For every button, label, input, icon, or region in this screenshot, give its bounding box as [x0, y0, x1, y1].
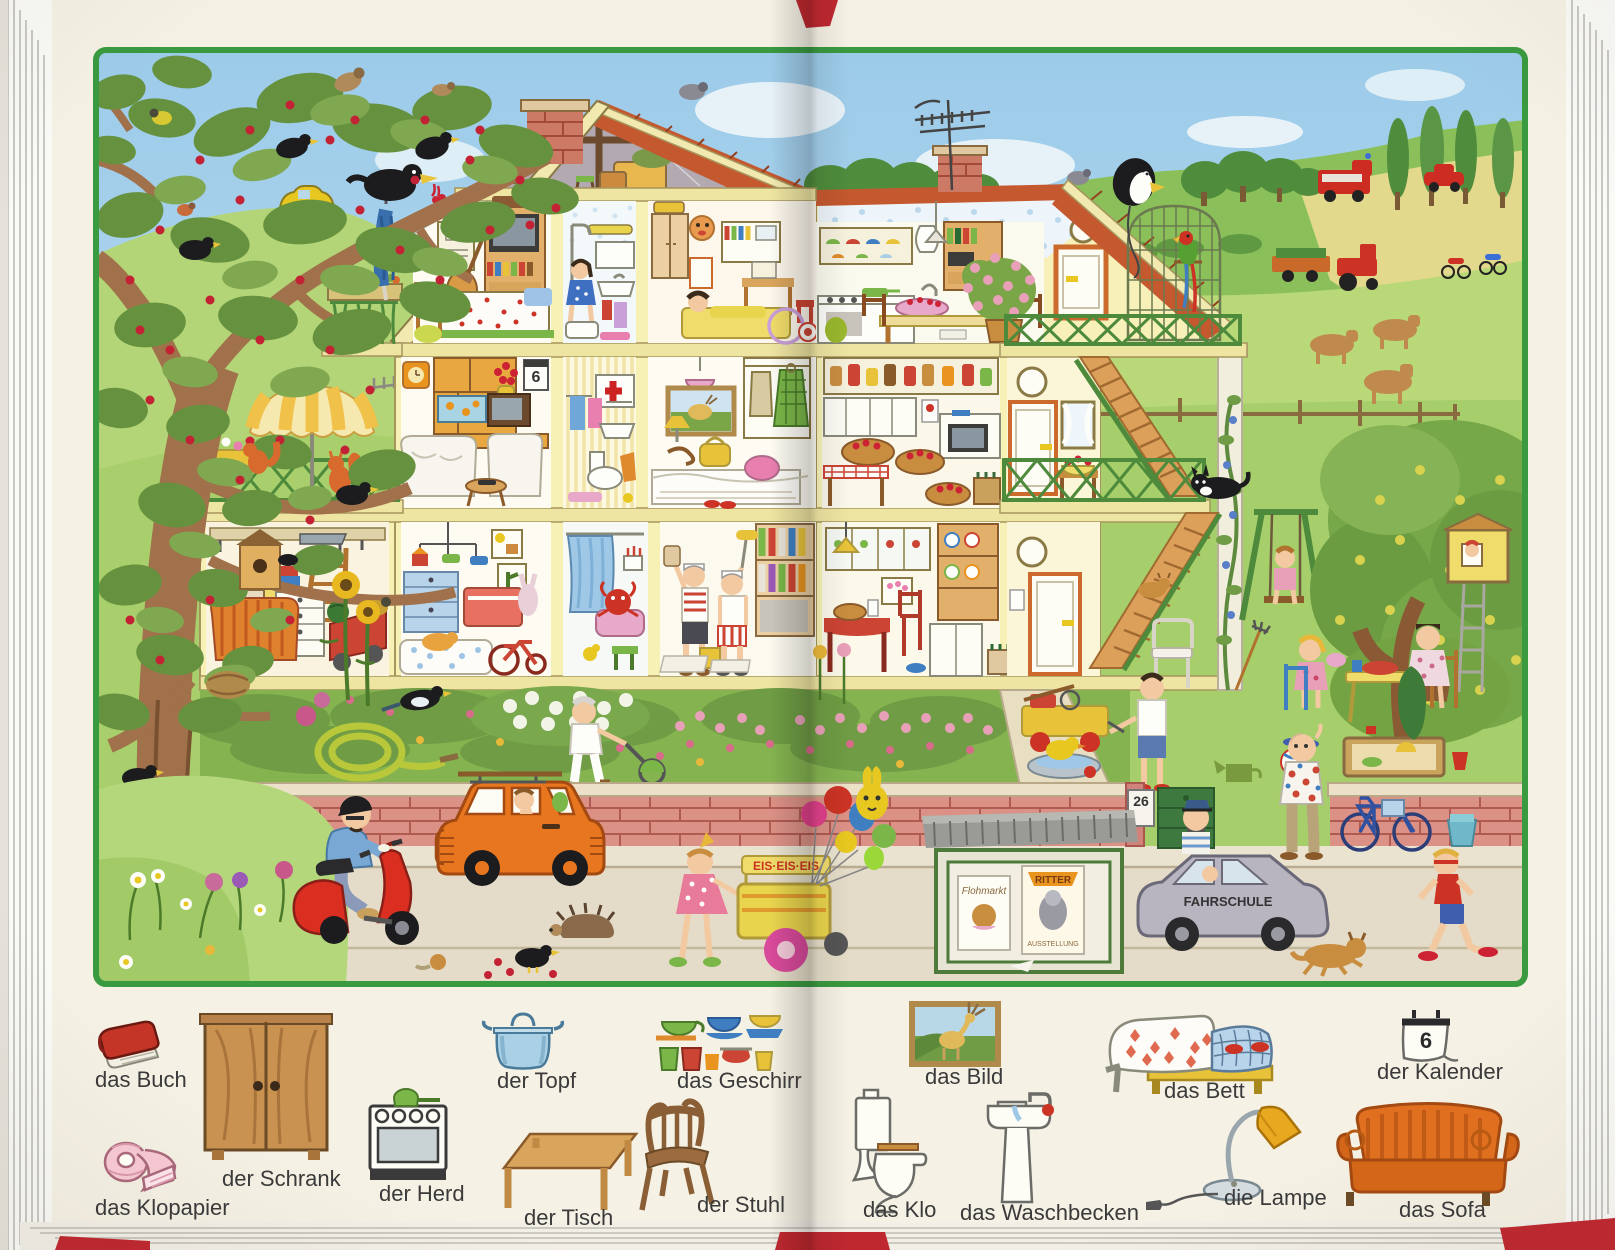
svg-text:AUSSTELLUNG: AUSSTELLUNG: [1027, 941, 1078, 948]
svg-text:das Waschbecken: das Waschbecken: [960, 1200, 1139, 1225]
svg-text:das Geschirr: das Geschirr: [677, 1068, 802, 1093]
svg-text:das Bild: das Bild: [925, 1064, 1003, 1089]
svg-text:das Klo: das Klo: [863, 1197, 936, 1222]
svg-text:RITTER: RITTER: [1035, 875, 1072, 886]
svg-text:das Klopapier: das Klopapier: [95, 1195, 230, 1220]
svg-text:6: 6: [1420, 1028, 1432, 1053]
svg-text:Flohmarkt: Flohmarkt: [962, 886, 1008, 897]
svg-text:der Herd: der Herd: [379, 1181, 465, 1206]
svg-text:der Kalender: der Kalender: [1377, 1059, 1503, 1084]
svg-text:6: 6: [532, 369, 541, 386]
svg-text:das Sofa: das Sofa: [1399, 1197, 1487, 1222]
svg-text:FAHRSCHULE: FAHRSCHULE: [1184, 894, 1273, 909]
svg-text:der Stuhl: der Stuhl: [697, 1192, 785, 1217]
svg-text:der Tisch: der Tisch: [524, 1205, 613, 1230]
svg-text:26: 26: [1133, 793, 1149, 809]
svg-text:das Buch: das Buch: [95, 1067, 187, 1092]
svg-text:der Topf: der Topf: [497, 1068, 577, 1093]
svg-text:der Schrank: der Schrank: [222, 1166, 342, 1191]
svg-text:die Lampe: die Lampe: [1224, 1185, 1327, 1210]
svg-text:das Bett: das Bett: [1164, 1078, 1245, 1103]
